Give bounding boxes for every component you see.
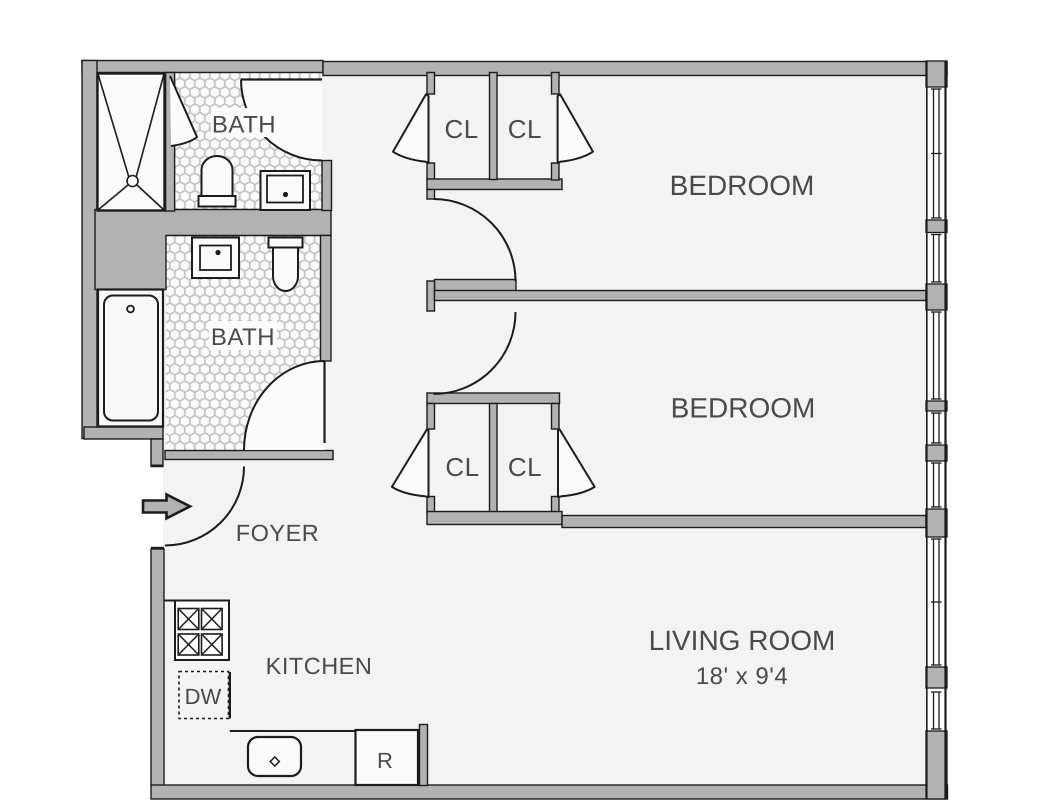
svg-text:R: R <box>377 748 393 773</box>
svg-text:CL: CL <box>508 114 542 144</box>
svg-text:CL: CL <box>508 452 542 482</box>
svg-text:BEDROOM: BEDROOM <box>671 392 816 423</box>
svg-text:DW: DW <box>185 684 222 709</box>
svg-text:BATH: BATH <box>212 111 276 138</box>
svg-text:KITCHEN: KITCHEN <box>266 653 373 679</box>
svg-text:LIVING ROOM: LIVING ROOM <box>649 625 836 656</box>
svg-text:BEDROOM: BEDROOM <box>670 170 815 201</box>
svg-text:CL: CL <box>444 114 478 144</box>
svg-text:BATH: BATH <box>211 324 275 351</box>
svg-text:FOYER: FOYER <box>236 520 319 546</box>
svg-text:CL: CL <box>445 452 479 482</box>
svg-text:18' x 9'4: 18' x 9'4 <box>696 663 788 690</box>
